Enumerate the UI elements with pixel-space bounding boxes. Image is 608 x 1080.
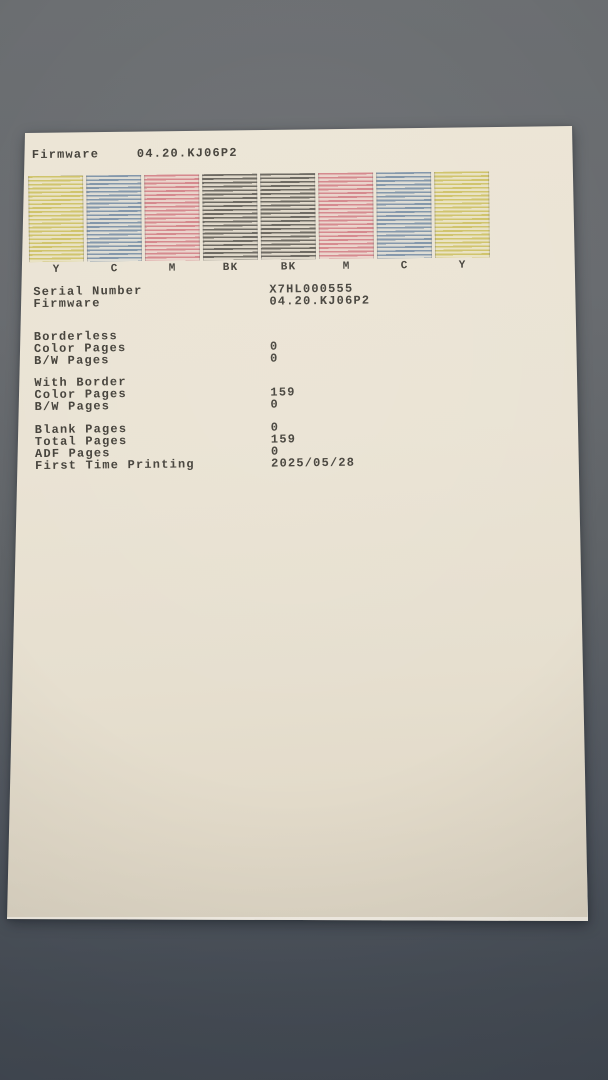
counter-row: B/W Pages 0 [34, 397, 464, 414]
nozzle-bar-stripes [434, 171, 490, 258]
nozzle-bar-stripes [318, 172, 374, 259]
counter-label: B/W Pages [34, 353, 270, 367]
photo-background: Firmware 04.20.KJ06P2 Y C M [0, 0, 608, 1080]
printed-content: Firmware 04.20.KJ06P2 Y C M [7, 119, 598, 922]
nozzle-bar-c-left [86, 175, 142, 262]
totals-section: Blank Pages 0 Total Pages 159 ADF Pages … [35, 420, 465, 473]
bar-label-y-right: Y [435, 259, 490, 272]
printer-test-page: Firmware 04.20.KJ06P2 Y C M [7, 125, 590, 922]
bar-label-m-right: M [319, 260, 374, 273]
nozzle-check-pattern [28, 171, 490, 262]
counter-value: 0 [270, 352, 279, 364]
nozzle-bar-bk-left [202, 174, 258, 261]
nozzle-bar-stripes [376, 172, 432, 259]
paper-edge-highlight-bottom [7, 917, 590, 922]
firmware-label: Firmware [33, 296, 269, 310]
bar-label-m-left: M [145, 262, 200, 275]
counter-row: B/W Pages 0 [34, 351, 464, 368]
bar-label-bk-left: BK [203, 262, 258, 275]
nozzle-bar-bk-right [260, 173, 316, 260]
firmware-value: 04.20.KJ06P2 [269, 295, 370, 308]
nozzle-bar-y-right [434, 171, 490, 258]
nozzle-bar-labels: Y C M BK BK M C Y [29, 259, 490, 276]
bar-label-y-left: Y [29, 264, 84, 277]
counter-value: 0 [270, 398, 279, 410]
counter-value: 2025/05/28 [271, 457, 355, 470]
firmware-header-label: Firmware [32, 148, 137, 161]
nozzle-bar-stripes [86, 175, 142, 262]
nozzle-bar-stripes [260, 173, 316, 260]
with-border-section: With Border Color Pages 159 B/W Pages 0 [34, 373, 464, 414]
counter-row: First Time Printing 2025/05/28 [35, 456, 465, 473]
nozzle-bar-stripes [144, 174, 200, 261]
nozzle-bar-stripes [28, 176, 84, 263]
firmware-header-line: Firmware 04.20.KJ06P2 [32, 147, 238, 161]
paper-sheet: Firmware 04.20.KJ06P2 Y C M [7, 125, 590, 922]
bar-label-c-left: C [87, 263, 142, 276]
device-info-block: Serial Number X7HL000555 Firmware 04.20.… [33, 282, 463, 311]
counter-label: B/W Pages [34, 399, 270, 413]
nozzle-bar-m-right [318, 172, 374, 259]
bar-label-bk-right: BK [261, 261, 316, 274]
borderless-section: Borderless Color Pages 0 B/W Pages 0 [34, 327, 464, 368]
firmware-header-value: 04.20.KJ06P2 [137, 147, 238, 160]
bar-label-c-right: C [377, 260, 432, 273]
paper-edge-highlight-right [587, 125, 590, 922]
nozzle-bar-stripes [202, 174, 258, 261]
nozzle-bar-c-right [376, 172, 432, 259]
nozzle-bar-y-left [28, 176, 84, 263]
nozzle-bar-m-left [144, 174, 200, 261]
counter-label: First Time Printing [35, 458, 271, 472]
firmware-row: Firmware 04.20.KJ06P2 [33, 294, 463, 311]
